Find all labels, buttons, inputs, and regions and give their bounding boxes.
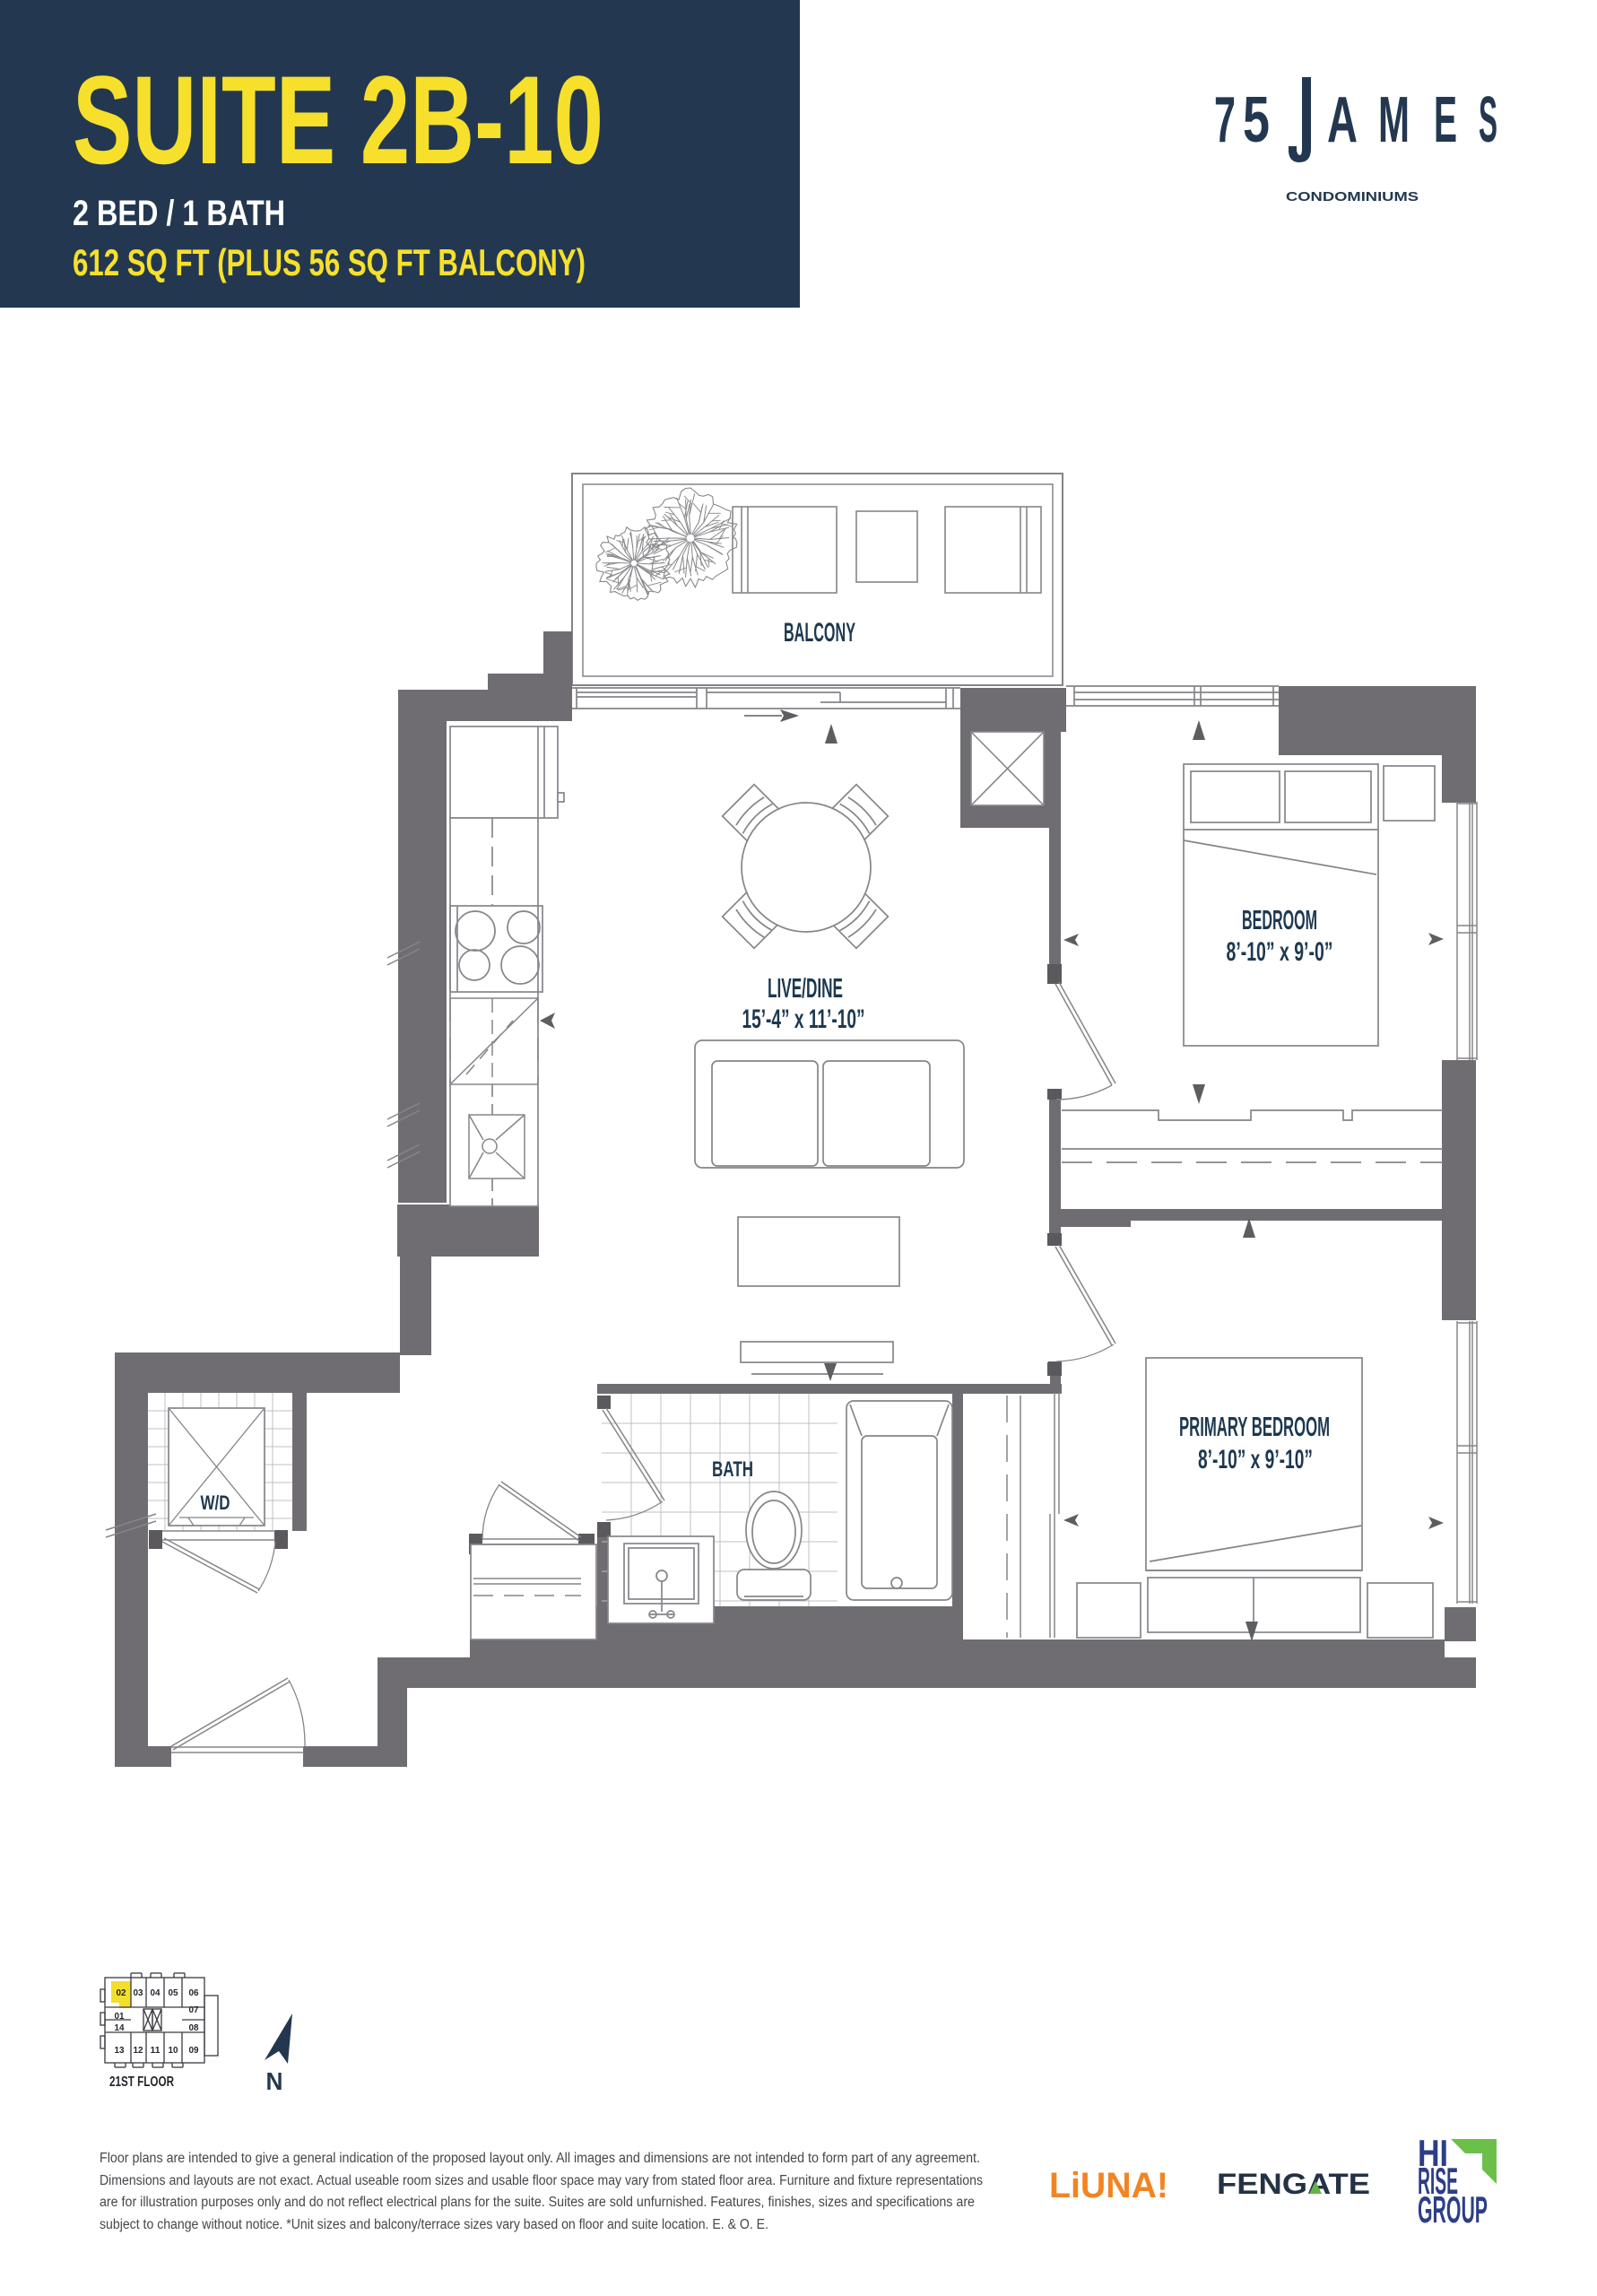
svg-text:8’-10” x 9’-10”: 8’-10” x 9’-10”	[1198, 1445, 1313, 1474]
svg-text:12: 12	[134, 2046, 143, 2056]
svg-text:06: 06	[189, 1988, 199, 1998]
svg-text:BALCONY: BALCONY	[784, 618, 855, 648]
svg-text:612 SQ FT (PLUS 56 SQ FT BALCO: 612 SQ FT (PLUS 56 SQ FT BALCONY)	[73, 241, 586, 283]
svg-text:Dimensions and layouts are not: Dimensions and layouts are not exact. Ac…	[100, 2173, 983, 2188]
svg-text:CONDOMINIUMS: CONDOMINIUMS	[1286, 189, 1419, 204]
svg-text:08: 08	[189, 2023, 199, 2033]
svg-text:09: 09	[189, 2046, 199, 2056]
svg-text:14: 14	[115, 2023, 125, 2033]
svg-text:8’-10” x 9’-0”: 8’-10” x 9’-0”	[1227, 937, 1333, 967]
svg-text:PRIMARY BEDROOM: PRIMARY BEDROOM	[1179, 1411, 1330, 1442]
svg-text:S: S	[1479, 84, 1497, 156]
svg-text:A: A	[1327, 84, 1358, 156]
svg-text:02: 02	[117, 1988, 126, 1998]
svg-text:GROUP: GROUP	[1418, 2188, 1488, 2231]
svg-text:05: 05	[169, 1988, 178, 1998]
svg-text:M: M	[1378, 84, 1410, 156]
svg-text:BEDROOM: BEDROOM	[1242, 904, 1317, 935]
svg-text:13: 13	[115, 2046, 125, 2056]
svg-text:7: 7	[1214, 84, 1236, 156]
svg-text:11: 11	[151, 2046, 161, 2056]
svg-text:5: 5	[1243, 84, 1270, 156]
svg-text:03: 03	[134, 1988, 143, 1998]
svg-text:FENGATE: FENGATE	[1217, 2168, 1370, 2200]
svg-text:10: 10	[169, 2046, 178, 2056]
svg-text:21ST FLOOR: 21ST FLOOR	[109, 2074, 174, 2090]
svg-text:2 BED / 1 BATH: 2 BED / 1 BATH	[73, 194, 285, 233]
svg-text:BATH: BATH	[712, 1457, 753, 1482]
svg-text:04: 04	[151, 1988, 161, 1998]
svg-text:15’-4” x 11’-10”: 15’-4” x 11’-10”	[742, 1004, 865, 1034]
svg-text:E: E	[1434, 84, 1457, 156]
svg-text:Floor plans are intended to gi: Floor plans are intended to give a gener…	[100, 2151, 980, 2166]
svg-text:are for illustration purposes: are for illustration purposes only and d…	[100, 2195, 975, 2210]
svg-text:W/D: W/D	[201, 1492, 230, 1514]
svg-text:LiUNA!: LiUNA!	[1049, 2166, 1168, 2205]
svg-text:01: 01	[115, 2012, 125, 2022]
svg-text:07: 07	[189, 2005, 199, 2015]
svg-text:N: N	[266, 2067, 283, 2095]
svg-text:SUITE 2B-10: SUITE 2B-10	[73, 49, 603, 190]
svg-text:subject to change without noti: subject to change without notice. *Unit …	[100, 2217, 768, 2232]
svg-text:LIVE/DINE: LIVE/DINE	[768, 972, 843, 1004]
